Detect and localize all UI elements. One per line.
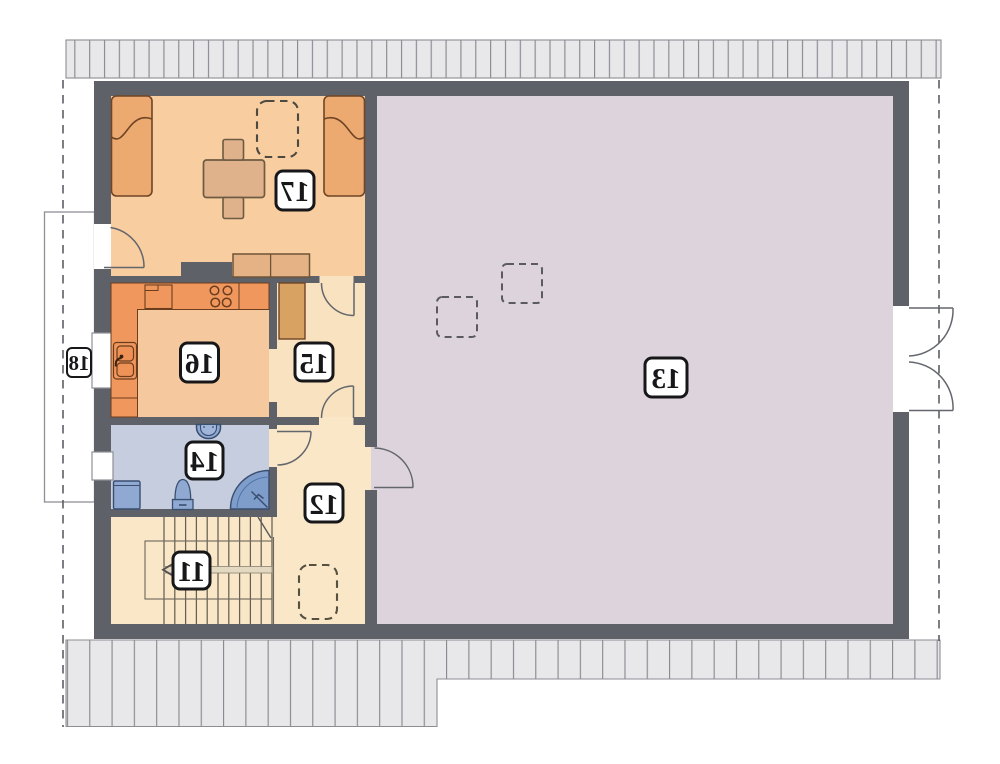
svg-text:13: 13 — [652, 363, 681, 395]
svg-text:14: 14 — [190, 446, 219, 478]
svg-text:11: 11 — [178, 556, 205, 588]
svg-text:12: 12 — [310, 489, 339, 521]
svg-text:17: 17 — [281, 176, 310, 208]
svg-text:18: 18 — [69, 351, 90, 375]
svg-text:15: 15 — [300, 348, 329, 380]
svg-text:16: 16 — [185, 348, 214, 380]
